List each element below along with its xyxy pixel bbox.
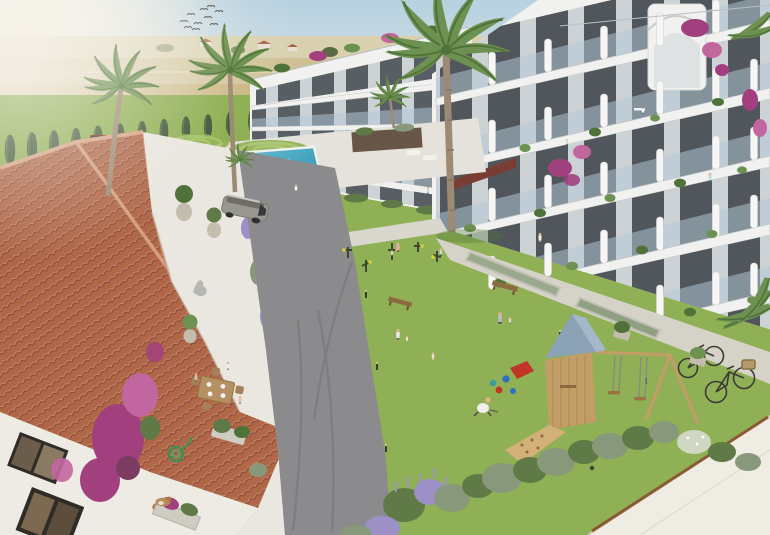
rendered-scene: Aerial architectural rendering of a Medi… bbox=[0, 0, 770, 535]
palm-shadow bbox=[436, 229, 504, 243]
